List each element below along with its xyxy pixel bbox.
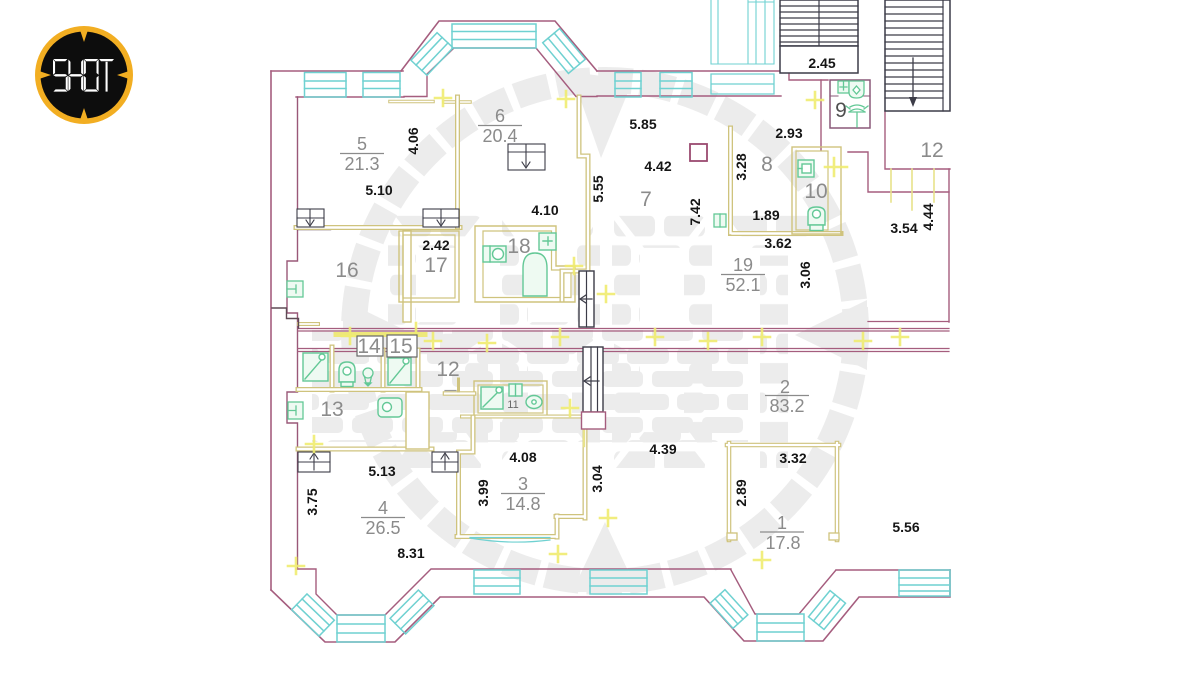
svg-text:5.13: 5.13 xyxy=(368,463,395,479)
svg-text:4.10: 4.10 xyxy=(531,202,558,218)
svg-text:20.4: 20.4 xyxy=(482,126,517,146)
svg-text:1: 1 xyxy=(777,513,787,533)
svg-text:12: 12 xyxy=(920,139,943,162)
svg-text:7: 7 xyxy=(640,188,652,211)
svg-text:10: 10 xyxy=(804,180,827,203)
svg-text:3.06: 3.06 xyxy=(797,261,813,288)
svg-text:3.75: 3.75 xyxy=(304,488,320,515)
svg-text:2: 2 xyxy=(780,377,790,397)
svg-text:9: 9 xyxy=(835,99,847,122)
svg-text:5.56: 5.56 xyxy=(892,519,919,535)
svg-text:2.42: 2.42 xyxy=(422,237,449,253)
svg-text:52.1: 52.1 xyxy=(725,275,760,295)
svg-text:5.55: 5.55 xyxy=(590,175,606,202)
svg-text:14.8: 14.8 xyxy=(505,494,540,514)
svg-text:3.54: 3.54 xyxy=(890,220,917,236)
svg-text:3.62: 3.62 xyxy=(764,235,791,251)
svg-text:15: 15 xyxy=(389,335,412,358)
svg-text:3: 3 xyxy=(518,474,528,494)
svg-text:3.28: 3.28 xyxy=(733,153,749,180)
svg-text:4.39: 4.39 xyxy=(649,441,676,457)
svg-text:13: 13 xyxy=(320,398,343,421)
svg-text:4: 4 xyxy=(378,498,388,518)
svg-text:4.42: 4.42 xyxy=(644,158,671,174)
svg-text:5: 5 xyxy=(357,134,367,154)
svg-text:16: 16 xyxy=(335,259,358,282)
svg-text:11: 11 xyxy=(507,399,518,411)
svg-text:14: 14 xyxy=(357,335,381,358)
svg-text:21.3: 21.3 xyxy=(344,154,379,174)
svg-text:2.93: 2.93 xyxy=(775,125,802,141)
svg-text:6: 6 xyxy=(495,106,505,126)
svg-text:5.10: 5.10 xyxy=(365,182,392,198)
svg-text:2.89: 2.89 xyxy=(733,479,749,506)
svg-text:3.04: 3.04 xyxy=(589,465,605,492)
svg-text:83.2: 83.2 xyxy=(769,396,804,416)
svg-text:3.99: 3.99 xyxy=(475,479,491,506)
svg-text:4.44: 4.44 xyxy=(920,203,936,230)
svg-text:4.08: 4.08 xyxy=(509,449,536,465)
svg-text:26.5: 26.5 xyxy=(365,518,400,538)
svg-text:8: 8 xyxy=(761,153,773,176)
svg-text:2.45: 2.45 xyxy=(808,55,835,71)
svg-text:18: 18 xyxy=(507,235,530,258)
svg-text:17: 17 xyxy=(424,254,447,277)
svg-text:8.31: 8.31 xyxy=(397,545,424,561)
svg-text:3.32: 3.32 xyxy=(779,450,806,466)
svg-text:5.85: 5.85 xyxy=(629,116,656,132)
svg-text:12: 12 xyxy=(436,358,459,381)
svg-text:1.89: 1.89 xyxy=(752,207,779,223)
svg-text:4.06: 4.06 xyxy=(405,127,421,154)
svg-text:19: 19 xyxy=(733,255,753,275)
svg-text:7.42: 7.42 xyxy=(687,198,703,225)
svg-text:17.8: 17.8 xyxy=(765,533,800,553)
